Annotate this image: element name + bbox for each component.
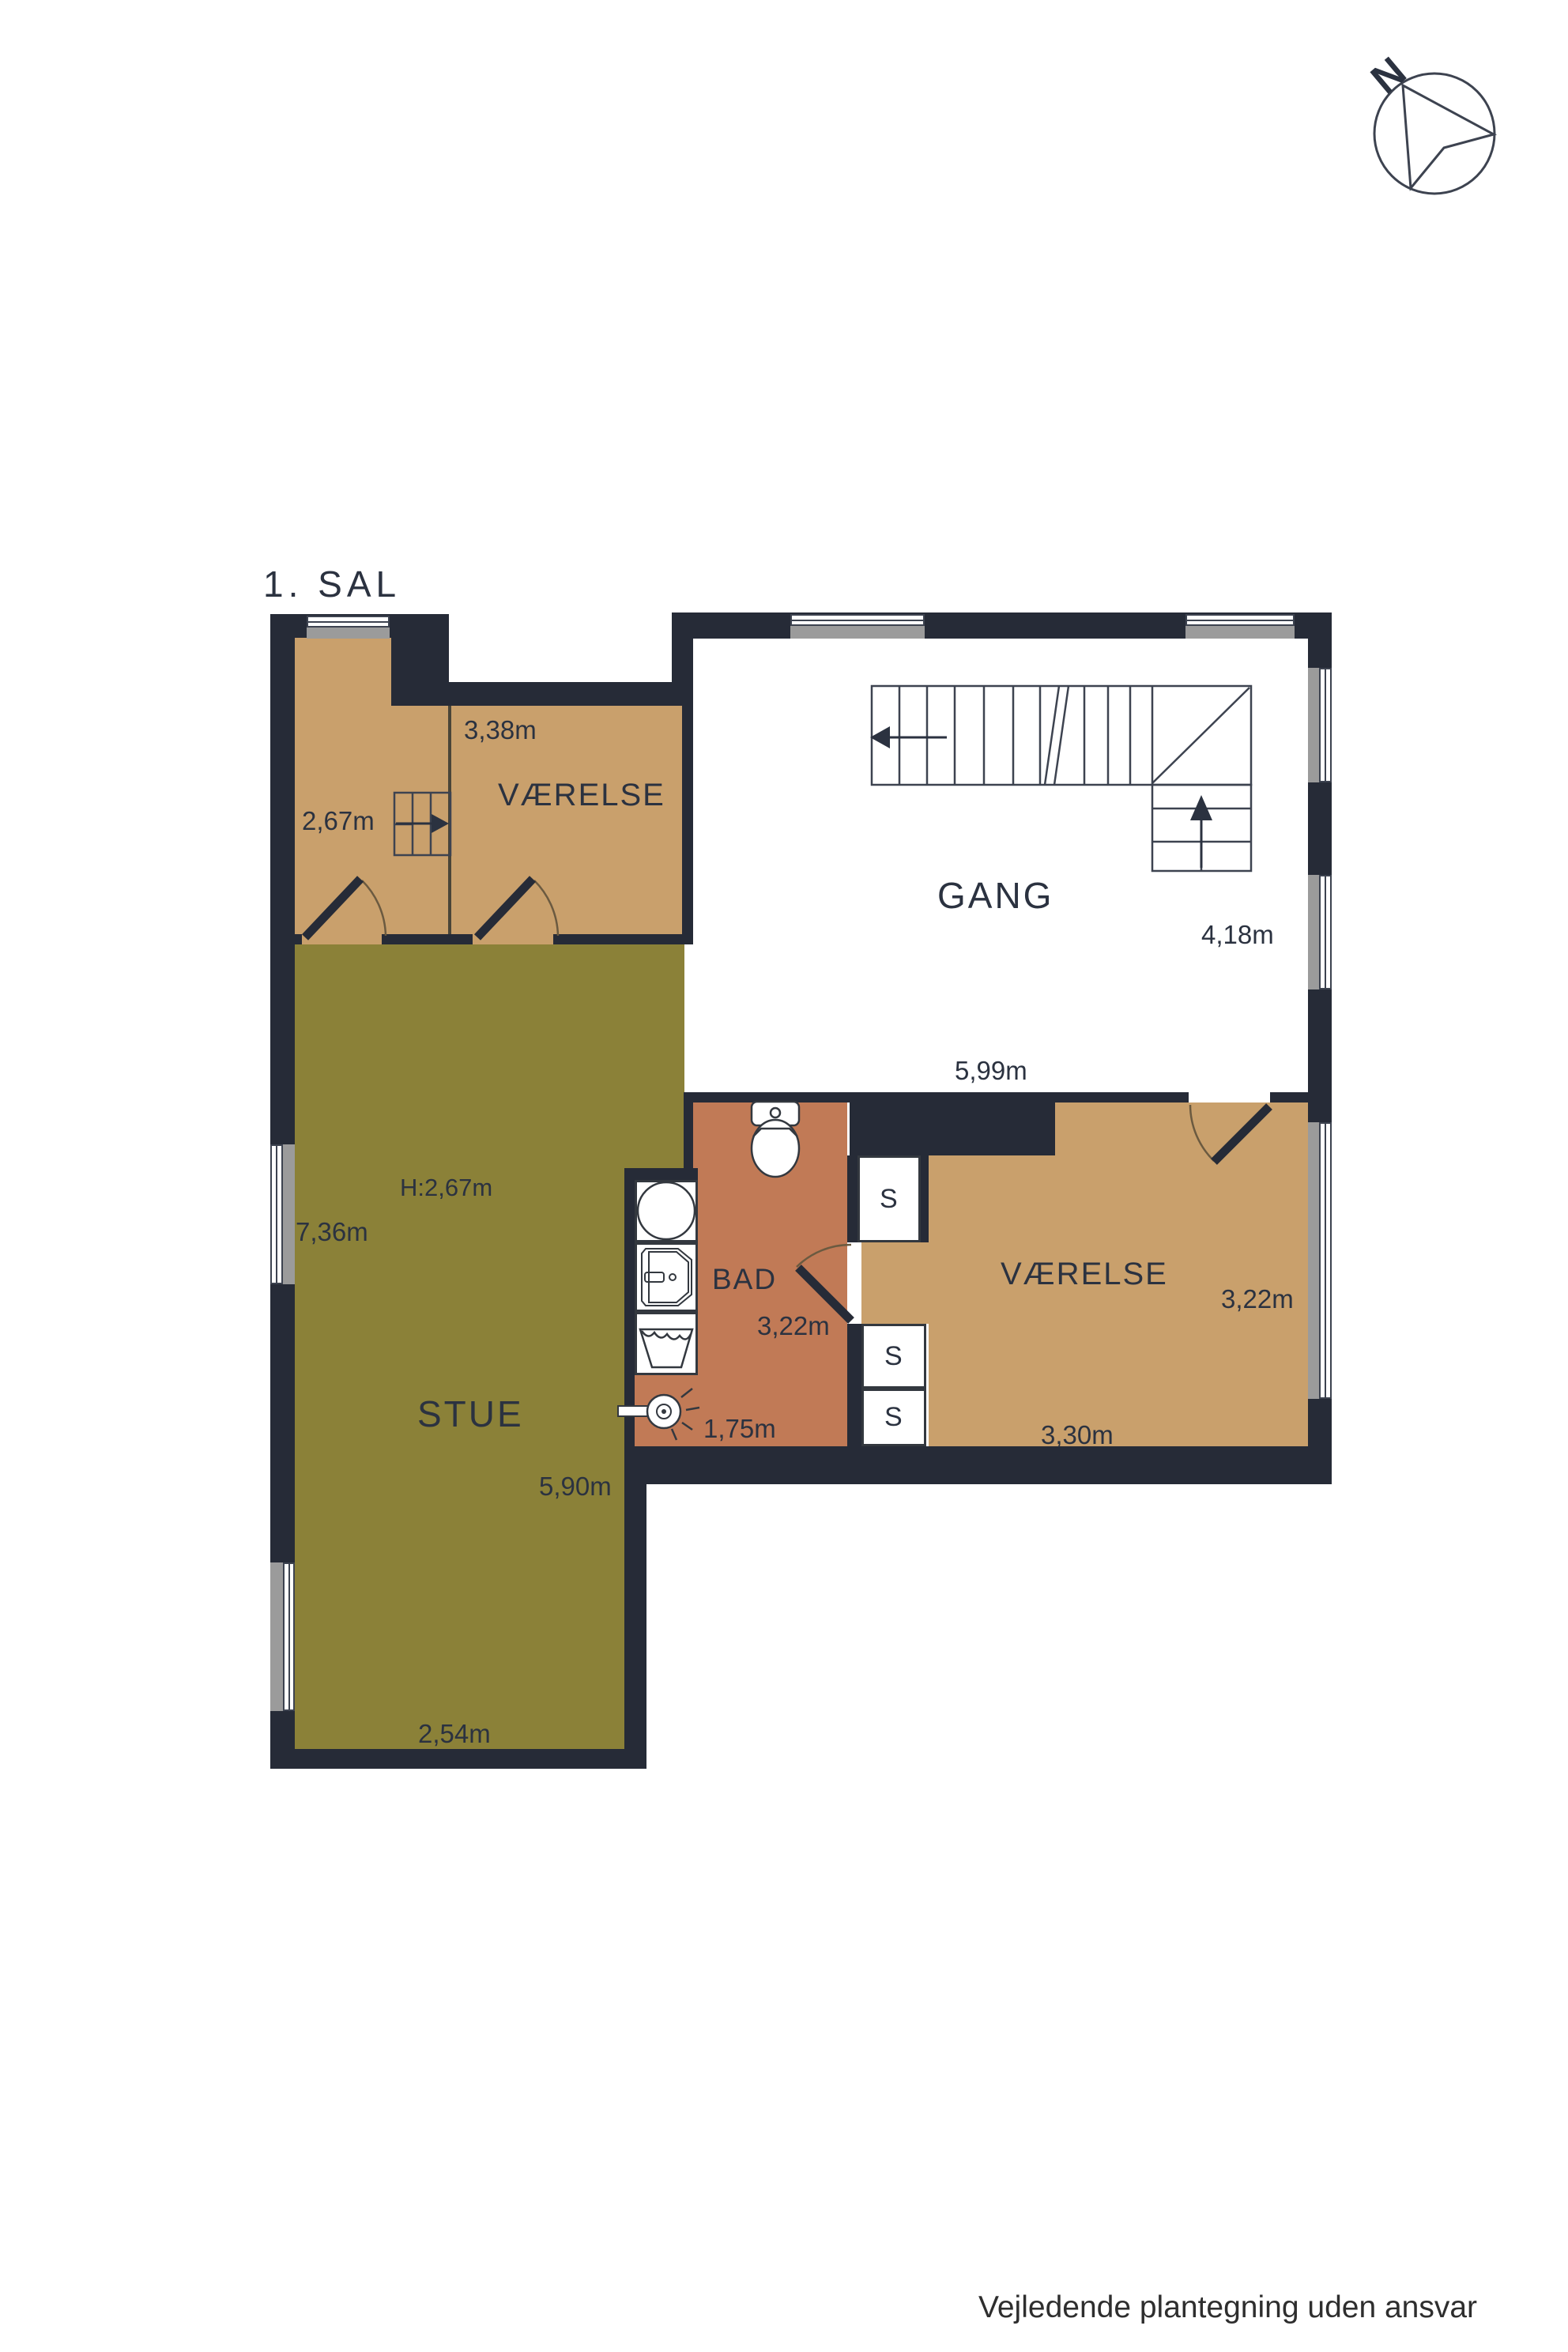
disclaimer-text: Vejledende plantegning uden ansvar (978, 2290, 1477, 2325)
stairs-landing-room (394, 793, 450, 855)
bad-width-label: 1,75m (703, 1414, 776, 1444)
vaerelse-top-label: VÆRELSE (498, 778, 665, 813)
bad-label: BAD (712, 1263, 777, 1296)
plan-linework: N (0, 0, 1568, 2352)
stue-bottom-width-label: 2,54m (418, 1719, 491, 1749)
door-bad (797, 1245, 851, 1321)
stue-ceiling-height-label: H:2,67m (400, 1174, 492, 1202)
gang-width-label: 5,99m (955, 1056, 1027, 1086)
toilet-icon (752, 1102, 799, 1177)
door-arc (362, 880, 386, 936)
sink-drain (669, 1274, 676, 1280)
bad-depth-label: 3,22m (757, 1311, 830, 1341)
closet-label-1: S (880, 1184, 898, 1215)
door-arc (534, 880, 558, 936)
door-leaf (477, 879, 533, 937)
vaerelse-bottom-width-label: 3,30m (1041, 1420, 1114, 1450)
stue-width-label: 5,90m (539, 1472, 612, 1502)
floor-plan-page: 1. SAL (0, 0, 1568, 2352)
closet-label-2: S (884, 1341, 903, 1372)
door-leaf (1214, 1106, 1269, 1162)
stairs-landing-diagonal (1152, 688, 1249, 783)
gang-depth-label: 4,18m (1201, 920, 1274, 950)
shower-arm (618, 1406, 650, 1416)
sink-icon (642, 1249, 692, 1306)
door-landing-to-stue (305, 879, 386, 937)
vaerelse-bottom-depth-label: 3,22m (1221, 1284, 1294, 1314)
shower-icon (618, 1389, 699, 1440)
laundry-icon (640, 1329, 692, 1367)
door-vaerelse-top-to-stue (477, 879, 558, 937)
vaerelse-bottom-label: VÆRELSE (1001, 1257, 1168, 1292)
closet-label-3: S (884, 1402, 903, 1433)
stairs-small-arrow-head (432, 814, 449, 833)
washing-machine-icon (638, 1182, 695, 1239)
door-arc (797, 1245, 851, 1267)
stue-label: STUE (417, 1393, 524, 1435)
compass-icon: N (1363, 48, 1494, 194)
vaerelse-top-width-label: 3,38m (464, 715, 537, 745)
landing-width-label: 2,67m (302, 806, 375, 836)
gang-label: GANG (937, 874, 1053, 917)
door-leaf (305, 879, 360, 937)
stue-depth-label: 7,36m (296, 1217, 368, 1247)
stairs-main (872, 686, 1251, 871)
stairs-arrow-left-head (870, 726, 890, 748)
sink-tap (645, 1272, 664, 1282)
compass-north-label: N (1363, 48, 1415, 103)
laundry-wave (642, 1331, 691, 1340)
door-arc (1190, 1105, 1214, 1161)
shower-head-dot (661, 1409, 666, 1414)
stairs-direction-arrows (870, 726, 1212, 868)
door-gang-to-vaerelse-bottom (1190, 1105, 1269, 1162)
